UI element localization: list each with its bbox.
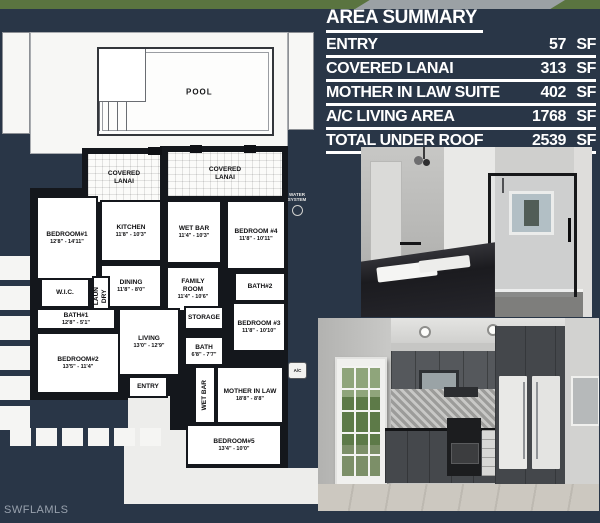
room-label: STORAGE — [188, 314, 220, 322]
pool: POOL — [97, 47, 274, 136]
row-value: 402 — [514, 84, 566, 102]
water-system-icon — [292, 205, 303, 216]
row-unit: SF — [566, 108, 596, 126]
door-header-mark — [190, 145, 202, 153]
area-summary-row: COVERED LANAI 313 SF — [326, 58, 596, 82]
room-bedroom-1: BEDROOM#1 12'8" - 14'11" — [36, 196, 98, 280]
row-label: ENTRY — [326, 36, 514, 54]
paver-strip-vertical — [0, 252, 30, 430]
pool-spa — [99, 49, 146, 102]
room-label: BEDROOM #4 — [235, 228, 278, 236]
room-bedroom-3: BEDROOM #3 11'8" - 10'10" — [232, 302, 286, 352]
row-value: 1768 — [514, 108, 566, 126]
water-system-label: WATER SYSTEM — [284, 192, 310, 203]
bathroom-photo — [361, 147, 592, 317]
room-dims: 12'8" - 5'1" — [62, 320, 90, 327]
row-value: 313 — [514, 60, 566, 78]
patio-door — [335, 357, 387, 488]
recessed-light-icon — [419, 326, 431, 338]
room-label: COVERED LANAI — [209, 166, 241, 182]
room-bath-2: BATH#2 — [234, 272, 286, 302]
row-label: MOTHER IN LAW SUITE — [326, 84, 514, 102]
room-dims: 11'8" - 10'3" — [116, 232, 147, 239]
water-system-badge: WATER SYSTEM — [284, 192, 310, 216]
room-dims: 13'4" - 10'0" — [218, 446, 249, 453]
room-label: BEDROOM #3 — [238, 320, 281, 328]
room-bedroom-4: BEDROOM #4 11'8" - 10'11" — [226, 200, 286, 270]
room-walk-in-closet: W.I.C. — [40, 278, 90, 308]
pool-label: POOL — [186, 87, 213, 96]
room-dims: 11'8" - 10'10" — [242, 328, 276, 335]
bathroom-light-stem — [423, 147, 425, 159]
room-bath: BATH 6'8" - 7'7" — [184, 336, 224, 366]
room-wet-bar: WET BAR 11'4" - 10'3" — [166, 200, 222, 264]
room-dims: 18'8" - 8'8" — [236, 396, 264, 403]
room-label: BATH — [195, 344, 213, 352]
room-storage: STORAGE — [184, 306, 224, 330]
room-label: ENTRY — [137, 383, 159, 391]
area-summary-title: AREA SUMMARY — [326, 6, 483, 33]
listing-image: AREA SUMMARY ENTRY 57 SF COVERED LANAI 3… — [0, 0, 600, 523]
room-dims: 12'8" - 14'11" — [50, 239, 84, 246]
room-label: BEDROOM#1 — [46, 231, 87, 239]
room-covered-lanai-right: COVERED LANAI — [166, 150, 284, 198]
room-dims: 11'4" - 10'3" — [179, 233, 210, 240]
door-header-mark — [244, 145, 256, 153]
area-summary-row: ENTRY 57 SF — [326, 34, 596, 58]
room-dims: 11'8" - 8'0" — [117, 287, 145, 294]
kitchen-photo — [318, 318, 599, 511]
area-summary-row: MOTHER IN LAW SUITE 402 SF — [326, 82, 596, 106]
room-mother-in-law: MOTHER IN LAW 18'8" - 8'8" — [216, 366, 284, 424]
room-label: LIVING — [138, 335, 160, 343]
room-label: BEDROOM#2 — [57, 356, 98, 364]
oven-window — [451, 443, 479, 465]
room-label: BATH#2 — [248, 283, 273, 291]
row-unit: SF — [566, 60, 596, 78]
ac-unit-badge: A/C — [288, 362, 307, 379]
room-label: LAUN DRY — [93, 287, 109, 305]
room-living: LIVING 13'0" - 12'9" — [118, 308, 180, 376]
room-dims: 11'4" - 10'6" — [178, 294, 209, 301]
room-label: FAMILY ROOM — [181, 278, 204, 294]
row-value: 57 — [514, 36, 566, 54]
room-label: DINING — [120, 279, 143, 287]
fridge-handle-icon — [523, 382, 525, 459]
area-summary-row: A/C LIVING AREA 1768 SF — [326, 106, 596, 130]
patio-door-glass — [342, 366, 380, 476]
room-entry: ENTRY — [128, 376, 168, 398]
range-oven — [447, 418, 481, 476]
room-label: BEDROOM#5 — [213, 438, 254, 446]
shower-door-handle — [568, 218, 571, 242]
wall-art-frame — [571, 376, 599, 426]
room-dims: 11'8" - 10'11" — [239, 236, 273, 243]
room-label: BATH#1 — [64, 312, 89, 320]
range-hood — [444, 387, 478, 397]
room-label: W.I.C. — [56, 289, 74, 297]
shower-frame-right — [574, 173, 577, 297]
room-bedroom-5: BEDROOM#5 13'4" - 10'0" — [186, 424, 282, 466]
row-label: COVERED LANAI — [326, 60, 514, 78]
room-bedroom-2: BEDROOM#2 13'5" - 11'4" — [36, 332, 120, 394]
fridge-handle-icon — [536, 382, 538, 459]
bathroom-light-icon — [414, 156, 423, 165]
paver-strip-horizontal — [10, 428, 165, 446]
room-dims: 13'5" - 11'4" — [63, 364, 94, 371]
row-unit: SF — [566, 84, 596, 102]
room-label: COVERED LANAI — [108, 170, 140, 186]
kitchen-floor — [318, 484, 599, 511]
room-dims: 6'8" - 7'7" — [192, 352, 217, 359]
room-kitchen: KITCHEN 11'8" - 10'3" — [100, 200, 162, 262]
room-dims: 13'0" - 12'9" — [133, 343, 164, 350]
sidewalk — [186, 468, 320, 504]
room-wet-bar-suite: WET BAR — [194, 366, 216, 424]
room-bath-1: BATH#1 12'8" - 5'1" — [36, 308, 116, 330]
left-planter — [2, 32, 30, 134]
room-label: WET BAR — [201, 380, 209, 410]
row-unit: SF — [566, 36, 596, 54]
room-label: WET BAR — [179, 225, 209, 233]
shower-glass — [488, 173, 576, 297]
right-planter — [288, 32, 314, 130]
pool-steps — [99, 101, 127, 131]
row-label: A/C LIVING AREA — [326, 108, 514, 126]
mls-watermark: SWFLAMLS — [4, 504, 69, 516]
shower-frame-top — [488, 173, 577, 176]
faucet-icon — [400, 242, 421, 245]
room-label: KITCHEN — [117, 224, 146, 232]
area-summary-table: AREA SUMMARY ENTRY 57 SF COVERED LANAI 3… — [326, 6, 596, 154]
room-label: MOTHER IN LAW — [224, 388, 277, 396]
door-header-mark — [148, 147, 162, 155]
